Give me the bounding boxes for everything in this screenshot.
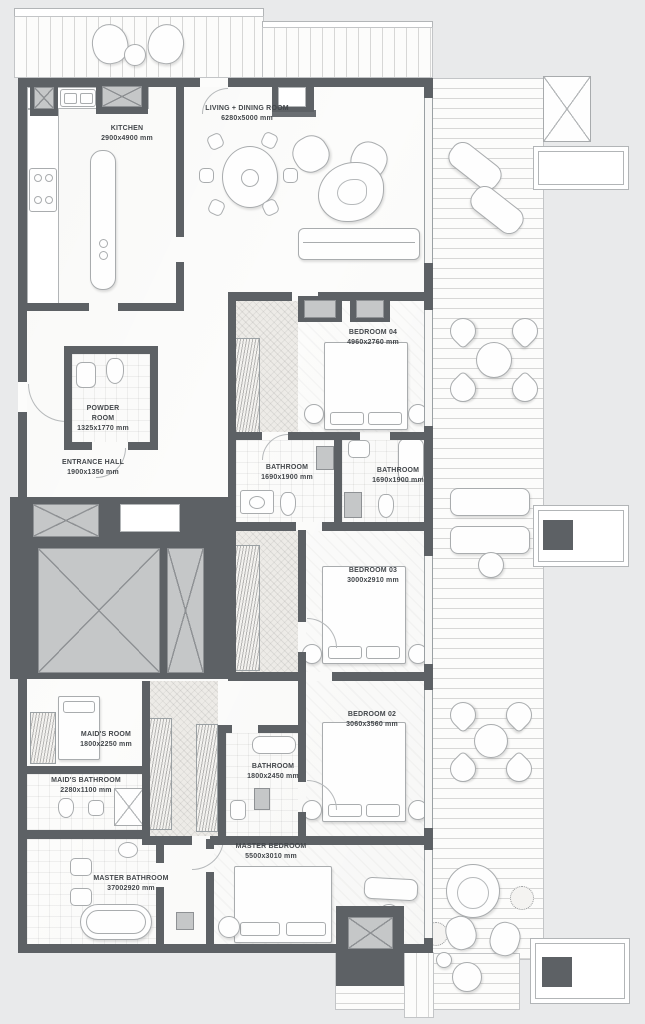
wall bbox=[258, 725, 302, 733]
room-label-master-bedroom: MASTER BEDROOM5500x3010 mm bbox=[236, 842, 307, 862]
window bbox=[424, 310, 433, 426]
room-label-bedroom03: BEDROOM 033000x2910 mm bbox=[347, 566, 399, 586]
planter-block bbox=[542, 957, 572, 987]
room-name: MAID'S ROOM bbox=[80, 730, 132, 740]
room-dims: 1800x2450 mm bbox=[247, 772, 299, 782]
round-lounger bbox=[446, 864, 500, 918]
pillow bbox=[286, 922, 326, 936]
side-table bbox=[436, 952, 452, 968]
sink-basin bbox=[80, 93, 93, 104]
sofa-seat bbox=[303, 242, 415, 256]
room-label-bathroom-b: BATHROOM1690x1900 mm bbox=[372, 466, 424, 486]
wall bbox=[288, 432, 360, 440]
wall bbox=[27, 830, 148, 839]
closet bbox=[304, 300, 336, 318]
wall bbox=[142, 681, 150, 836]
wall bbox=[322, 522, 432, 531]
room-dims: 3060x3560 mm bbox=[346, 720, 398, 730]
room-name: BEDROOM 02 bbox=[346, 710, 398, 720]
wall bbox=[156, 839, 164, 863]
wall bbox=[176, 262, 184, 308]
outdoor-table bbox=[474, 724, 508, 758]
room-label-master-bathroom: MASTER BATHROOM37002920 mm bbox=[93, 874, 168, 894]
room-dims: 4960x2760 mm bbox=[347, 338, 399, 348]
lobby-bench bbox=[120, 504, 180, 532]
shower bbox=[316, 446, 334, 470]
wall bbox=[64, 442, 92, 450]
room-dims: 37002920 mm bbox=[93, 884, 168, 894]
wall bbox=[27, 766, 148, 774]
wall bbox=[176, 87, 184, 237]
bathtub-inner bbox=[86, 910, 146, 934]
duct bbox=[102, 86, 142, 107]
wall bbox=[206, 839, 214, 849]
floor-plan: KITCHEN2900x4900 mm LIVING + DINING ROOM… bbox=[0, 0, 645, 1024]
wall bbox=[298, 530, 306, 622]
room-label-bedroom04: BEDROOM 044960x2760 mm bbox=[347, 328, 399, 348]
deck-bench bbox=[404, 952, 434, 1018]
outdoor-table bbox=[478, 552, 504, 578]
room-name: BEDROOM 04 bbox=[347, 328, 399, 338]
room-label-kitchen: KITCHEN2900x4900 mm bbox=[101, 124, 153, 144]
window bbox=[424, 98, 433, 263]
kitchen-island bbox=[90, 150, 116, 290]
toilet bbox=[254, 788, 270, 810]
wardrobe bbox=[196, 724, 218, 832]
burner bbox=[34, 174, 42, 182]
room-label-living: LIVING + DINING ROOM6280x5000 mm bbox=[205, 104, 289, 124]
pillow bbox=[240, 922, 280, 936]
room-label-entrance: ENTRANCE HALL1900x1350 mm bbox=[62, 458, 124, 478]
door-opening bbox=[200, 78, 228, 87]
sink bbox=[230, 800, 246, 820]
toilet bbox=[280, 492, 296, 516]
room-name: BATHROOM bbox=[261, 463, 313, 473]
room-name: BATHROOM bbox=[247, 762, 299, 772]
burner bbox=[34, 196, 42, 204]
plant bbox=[510, 886, 534, 910]
wall bbox=[64, 346, 158, 354]
room-label-maids-room: MAID'S ROOM1800x2250 mm bbox=[80, 730, 132, 750]
room-label-bathroom-c: BATHROOM1800x2450 mm bbox=[247, 762, 299, 782]
outdoor-bench bbox=[450, 526, 530, 554]
dining-chair bbox=[199, 168, 214, 183]
elevator-shaft bbox=[38, 548, 160, 673]
wall bbox=[128, 442, 158, 450]
hob bbox=[99, 239, 108, 248]
planter-inner bbox=[538, 151, 624, 185]
wall bbox=[27, 303, 89, 311]
wall bbox=[298, 812, 306, 837]
balcony-table bbox=[124, 44, 146, 66]
sofa bbox=[298, 228, 420, 260]
room-label-maids-bathroom: MAID'S BATHROOM2280x1100 mm bbox=[51, 776, 121, 796]
service-shaft bbox=[167, 548, 204, 673]
wall bbox=[206, 872, 214, 944]
bathtub bbox=[252, 736, 296, 754]
pillow bbox=[366, 646, 400, 659]
room-dims: 1325x1770 mm bbox=[75, 424, 131, 434]
room-name: ENTRANCE HALL bbox=[62, 458, 124, 468]
wall bbox=[228, 292, 292, 301]
room-name: MASTER BATHROOM bbox=[93, 874, 168, 884]
dining-chair bbox=[283, 168, 298, 183]
window bbox=[424, 690, 433, 828]
room-label-powder: POWDER ROOM1325x1770 mm bbox=[75, 404, 131, 434]
wall bbox=[228, 292, 236, 530]
sink bbox=[88, 800, 104, 816]
sink bbox=[70, 888, 92, 906]
wall bbox=[228, 530, 236, 681]
window bbox=[424, 850, 433, 938]
kitchen-sink bbox=[60, 89, 96, 107]
wall bbox=[218, 725, 232, 733]
wall bbox=[142, 836, 192, 845]
wall bbox=[334, 432, 342, 530]
wall bbox=[390, 432, 432, 440]
room-dims: 5500x3010 mm bbox=[236, 852, 307, 862]
chaise bbox=[363, 877, 418, 902]
wardrobe bbox=[30, 712, 56, 764]
wall bbox=[150, 346, 158, 450]
sink-basin bbox=[249, 496, 265, 509]
wall bbox=[332, 672, 432, 681]
window bbox=[424, 556, 433, 664]
room-dims: 2280x1100 mm bbox=[51, 786, 121, 796]
toilet bbox=[378, 494, 394, 518]
room-label-bedroom02: BEDROOM 023060x3560 mm bbox=[346, 710, 398, 730]
pillow bbox=[368, 412, 402, 425]
service-shaft bbox=[33, 504, 99, 537]
pillow bbox=[63, 701, 95, 713]
planter bbox=[533, 505, 629, 567]
structural-column bbox=[543, 76, 591, 142]
hob bbox=[99, 251, 108, 260]
room-name: KITCHEN bbox=[101, 124, 153, 134]
wc-fixture bbox=[176, 912, 194, 930]
room-dims: 2900x4900 mm bbox=[101, 134, 153, 144]
wall bbox=[64, 346, 72, 450]
room-name: LIVING + DINING ROOM bbox=[205, 104, 289, 114]
room-dims: 6280x5000 mm bbox=[205, 114, 289, 124]
sink-basin bbox=[64, 93, 77, 104]
closet bbox=[356, 300, 384, 318]
room-dims: 3000x2910 mm bbox=[347, 576, 399, 586]
room-label-bathroom-a: BATHROOM1690x1900 mm bbox=[261, 463, 313, 483]
room-name: BEDROOM 03 bbox=[347, 566, 399, 576]
table-center bbox=[241, 169, 259, 187]
room-name: MASTER BEDROOM bbox=[236, 842, 307, 852]
coffee-table-inner bbox=[337, 179, 367, 205]
planter bbox=[530, 938, 630, 1004]
sink-counter bbox=[240, 490, 274, 514]
room-name: BATHROOM bbox=[372, 466, 424, 476]
bed bbox=[58, 696, 100, 760]
toilet bbox=[106, 358, 124, 384]
toilet bbox=[118, 842, 138, 858]
stove bbox=[29, 168, 57, 212]
entrance-door-opening bbox=[18, 382, 27, 412]
room-dims: 1690x1900 mm bbox=[261, 473, 313, 483]
room-name: POWDER ROOM bbox=[75, 404, 131, 424]
burner bbox=[45, 196, 53, 204]
wall bbox=[228, 672, 304, 681]
wall bbox=[236, 432, 262, 440]
wall bbox=[218, 725, 226, 836]
burner bbox=[45, 174, 53, 182]
sink bbox=[76, 362, 96, 388]
pillow bbox=[366, 804, 400, 817]
bathtub bbox=[80, 904, 152, 940]
room-name: MAID'S BATHROOM bbox=[51, 776, 121, 786]
wall bbox=[18, 78, 27, 953]
outdoor-table bbox=[452, 962, 482, 992]
duct bbox=[34, 87, 54, 109]
sink bbox=[70, 858, 92, 876]
sink bbox=[348, 440, 370, 458]
duct bbox=[348, 917, 393, 949]
wardrobe bbox=[234, 545, 260, 671]
nightstand bbox=[218, 916, 240, 938]
wardrobe bbox=[148, 718, 172, 830]
outdoor-table bbox=[476, 342, 512, 378]
room-dims: 1800x2250 mm bbox=[80, 740, 132, 750]
toilet bbox=[58, 798, 74, 818]
nightstand bbox=[304, 404, 324, 424]
wardrobe bbox=[234, 338, 260, 438]
planter-block bbox=[543, 520, 573, 550]
wall bbox=[228, 522, 296, 531]
outdoor-bench bbox=[450, 488, 530, 516]
wall bbox=[118, 303, 184, 311]
lounger-cushion bbox=[457, 877, 489, 909]
planter bbox=[533, 146, 629, 190]
shower bbox=[344, 492, 362, 518]
wall bbox=[156, 887, 164, 944]
room-dims: 1900x1350 mm bbox=[62, 468, 124, 478]
room-dims: 1690x1900 mm bbox=[372, 476, 424, 486]
balcony-deck bbox=[262, 27, 433, 78]
pillow bbox=[330, 412, 364, 425]
